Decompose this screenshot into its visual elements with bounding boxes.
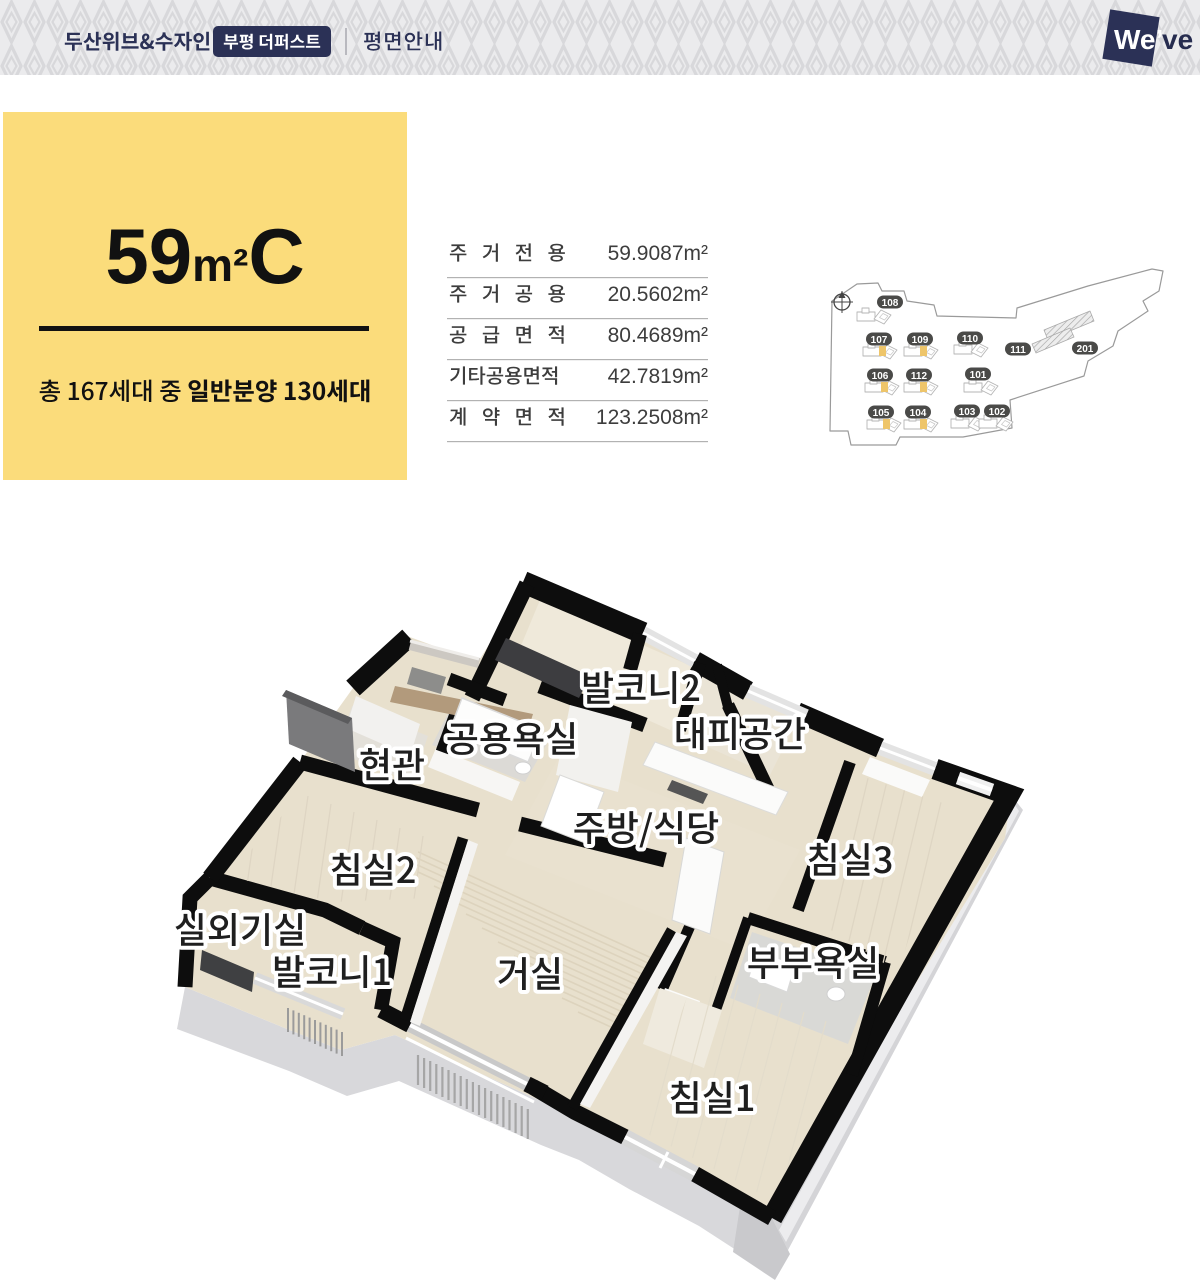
svg-text:110: 110 — [962, 334, 979, 345]
svg-text:103: 103 — [959, 407, 976, 418]
svg-text:107: 107 — [871, 335, 888, 346]
svg-text:112: 112 — [911, 371, 928, 382]
svg-text:109: 109 — [912, 335, 929, 346]
svg-text:42.7819m²: 42.7819m² — [608, 365, 708, 388]
svg-text:201: 201 — [1077, 344, 1094, 355]
svg-text:106: 106 — [872, 371, 889, 382]
svg-text:80.4689m²: 80.4689m² — [608, 324, 708, 347]
svg-text:102: 102 — [989, 407, 1006, 418]
svg-text:59.9087m²: 59.9087m² — [608, 242, 708, 265]
svg-text:123.2508m²: 123.2508m² — [596, 406, 708, 429]
svg-text:108: 108 — [882, 298, 899, 309]
svg-text:104: 104 — [910, 408, 927, 419]
svg-text:105: 105 — [873, 408, 890, 419]
svg-text:ve: ve — [1162, 24, 1193, 55]
svg-text:We’: We’ — [1114, 24, 1163, 55]
svg-text:101: 101 — [970, 370, 987, 381]
svg-text:20.5602m²: 20.5602m² — [608, 283, 708, 306]
svg-text:111: 111 — [1010, 345, 1026, 356]
